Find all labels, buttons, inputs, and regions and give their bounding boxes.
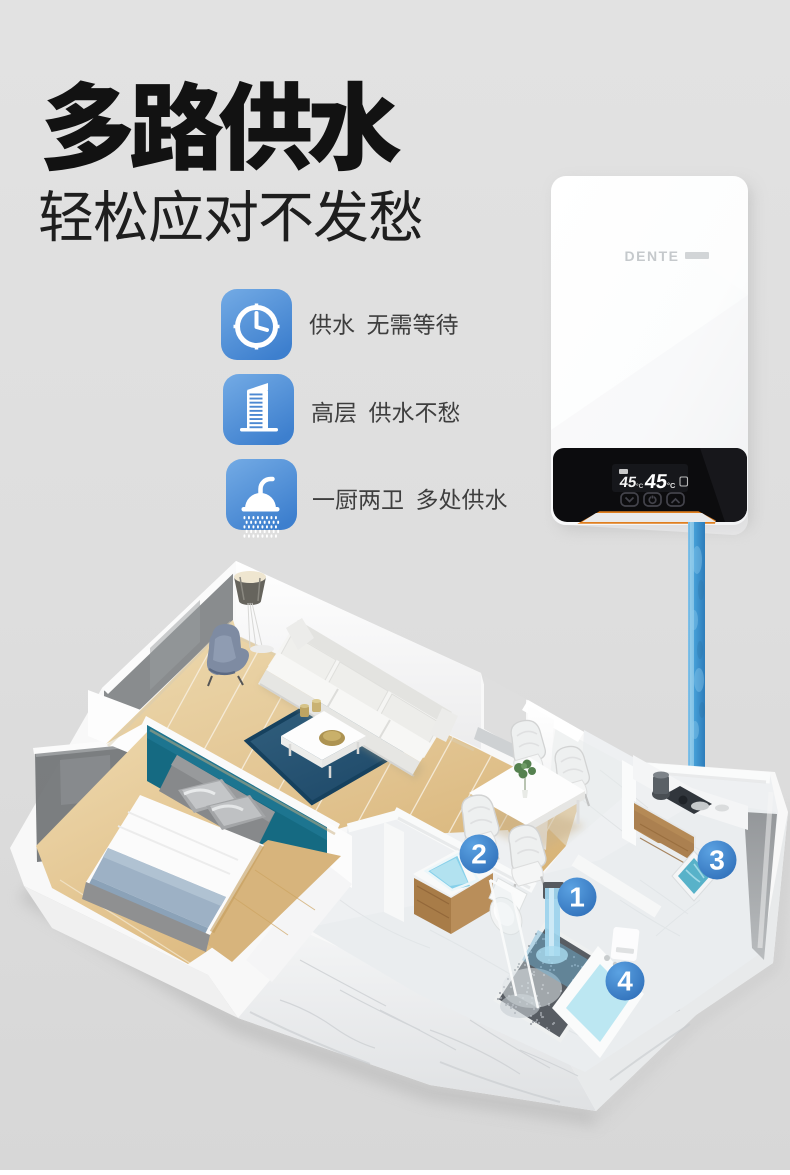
svg-text:1: 1	[569, 882, 585, 913]
svg-text:°C: °C	[667, 481, 676, 490]
svg-text:45: 45	[618, 474, 637, 491]
svg-text:3: 3	[709, 845, 725, 876]
svg-text:°C: °C	[636, 482, 644, 490]
svg-text:DENTE: DENTE	[625, 248, 680, 264]
svg-text:4: 4	[617, 966, 633, 997]
svg-text:2: 2	[471, 839, 487, 870]
svg-text:45: 45	[643, 471, 668, 493]
